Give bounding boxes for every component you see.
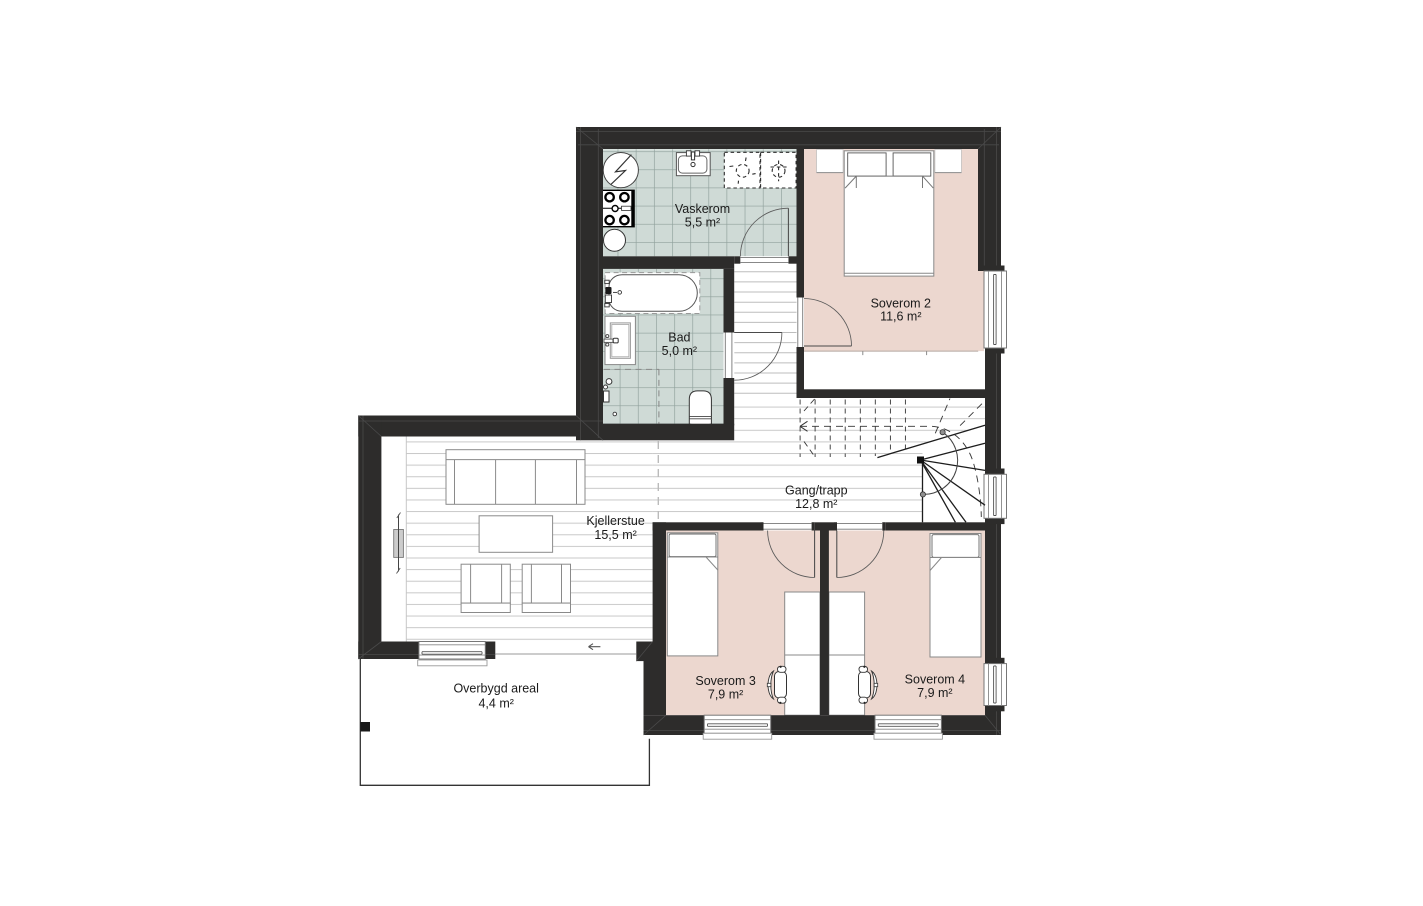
svg-text:15,5 m²: 15,5 m²: [594, 528, 636, 542]
svg-text:7,9 m²: 7,9 m²: [708, 687, 743, 701]
svg-text:12,8 m²: 12,8 m²: [795, 497, 837, 511]
svg-text:Bad: Bad: [668, 331, 690, 345]
svg-text:5,5 m²: 5,5 m²: [685, 216, 720, 230]
svg-text:7,9 m²: 7,9 m²: [917, 686, 952, 700]
svg-text:Soverom 3: Soverom 3: [695, 674, 755, 688]
svg-text:5,0 m²: 5,0 m²: [662, 344, 697, 358]
svg-text:Vaskerom: Vaskerom: [675, 202, 730, 216]
svg-text:Gang/trapp: Gang/trapp: [785, 483, 848, 497]
svg-text:11,6 m²: 11,6 m²: [880, 310, 921, 324]
svg-text:Soverom 4: Soverom 4: [905, 673, 965, 687]
svg-text:Kjellerstue: Kjellerstue: [586, 514, 644, 528]
svg-text:Overbygd areal: Overbygd areal: [453, 682, 538, 696]
svg-text:4,4 m²: 4,4 m²: [478, 696, 513, 710]
svg-text:Soverom 2: Soverom 2: [871, 296, 931, 310]
